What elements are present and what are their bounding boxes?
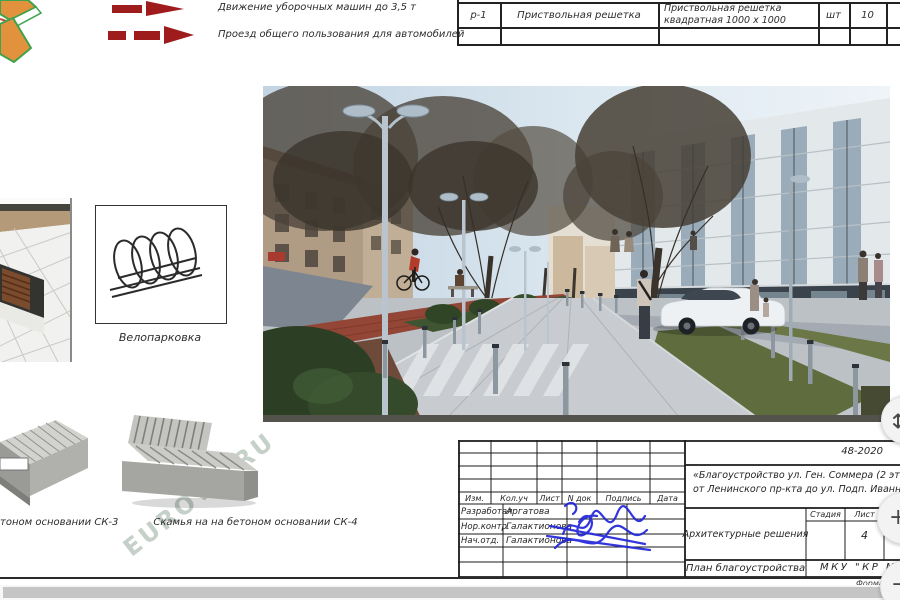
- col-izm: Изм.: [458, 492, 491, 504]
- doc-number: 48-2020: [685, 446, 883, 457]
- signer-role: Нач.отд.: [461, 536, 499, 546]
- sheet-frame-line: [0, 577, 900, 579]
- bike-parking-label: Велопарковка: [95, 331, 225, 344]
- stage-header: Стадия: [806, 508, 845, 521]
- spec-name: Приствольная решетка: [500, 4, 658, 26]
- drawing-sheet-viewer: Движение уборочных машин до 3,5 т Проезд…: [0, 0, 900, 600]
- street-render-photo: [263, 86, 890, 422]
- horizontal-scrollbar-track[interactable]: [0, 585, 900, 600]
- legend-label: Проезд общего пользования для автомобиле…: [218, 29, 464, 40]
- bike-parking-card: [95, 205, 227, 324]
- spec-mark: р-1: [457, 4, 500, 26]
- spec-description-line2: квадратная 1000 х 1000: [664, 15, 786, 26]
- spec-description-line1: Приствольная решетка: [664, 3, 781, 14]
- bike-rack-drawing: [96, 206, 223, 320]
- project-name-line1: «Благоустройство ул. Ген. Соммера (2 эта…: [693, 469, 900, 483]
- legend-label: Движение уборочных машин до 3,5 т: [218, 2, 416, 13]
- specification-table: р-1 Приствольная решетка Приствольная ре…: [455, 0, 900, 47]
- bench-sk4-image: [116, 413, 268, 509]
- bench-sk3-image: [0, 420, 90, 514]
- sheet-title: План благоустройства: [685, 560, 806, 577]
- site-axonometry-fragment: [0, 0, 42, 88]
- minus-icon: −: [891, 572, 900, 597]
- signature-scribble: [495, 496, 660, 568]
- paving-render-fragment: [0, 198, 72, 362]
- street-render-scene: [263, 86, 890, 422]
- title-block: Изм. Кол.уч Лист N док Подпись Дата Разр…: [455, 440, 900, 578]
- resize-icon: [890, 413, 900, 429]
- arrow-cleaning-icon: [108, 0, 188, 17]
- spec-quantity: 10: [849, 4, 886, 26]
- bench-sk4-label: Скамья на на бетоном основании СК-4: [138, 517, 373, 528]
- spec-unit: шт: [818, 4, 849, 26]
- project-name-line2: от Ленинского пр-кта до ул. Подп. Иванни…: [693, 483, 900, 497]
- plus-icon: +: [889, 505, 900, 530]
- arrow-traffic-icon: [106, 25, 198, 44]
- bench-sk3-label: тоном основании СК-3: [0, 517, 118, 528]
- horizontal-scrollbar-thumb[interactable]: [3, 587, 896, 598]
- section-title: Архитектурные решения: [685, 508, 806, 560]
- man-with-bag: [637, 270, 651, 339]
